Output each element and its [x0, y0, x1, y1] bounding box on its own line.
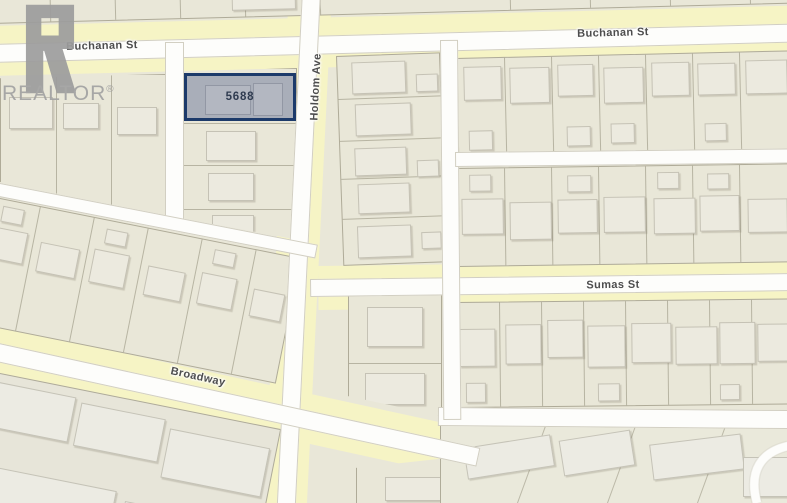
building-footprint [365, 373, 425, 405]
city-block [456, 298, 787, 408]
building-footprint [567, 175, 591, 192]
building-footprint [461, 198, 503, 235]
building-footprint [253, 83, 283, 116]
parcel-boundary-line [551, 57, 554, 157]
building-footprint [653, 198, 695, 235]
building-footprint [603, 196, 645, 233]
building-footprint [208, 173, 254, 201]
building-footprint [104, 229, 129, 248]
parcel-boundary-line [339, 95, 441, 100]
building-footprint [757, 323, 787, 361]
building-footprint [469, 175, 491, 192]
parcel-boundary-line [184, 165, 296, 166]
building-footprint [611, 123, 635, 144]
parcel-boundary-line [598, 167, 600, 264]
building-footprint [0, 206, 25, 226]
building-footprint [416, 73, 439, 92]
building-footprint [385, 477, 443, 501]
parcel-boundary-line [504, 58, 507, 158]
parcel-boundary-line [499, 303, 501, 407]
building-footprint [557, 64, 594, 97]
parcel-boundary-line [598, 56, 601, 156]
building-footprint [160, 428, 270, 497]
building-footprint [649, 434, 745, 481]
building-footprint [469, 130, 493, 151]
building-footprint [509, 67, 550, 104]
building-footprint [357, 183, 410, 215]
building-footprint [743, 457, 787, 497]
building-footprint [587, 325, 625, 367]
building-footprint [699, 195, 739, 232]
building-footprint [557, 199, 597, 234]
highlighted-parcel[interactable]: 5688 [184, 73, 296, 121]
street-label-buchanan-west: Buchanan St [60, 39, 144, 53]
building-footprint [651, 62, 690, 97]
building-footprint [603, 67, 644, 104]
parcel-boundary-line [349, 363, 441, 364]
parcel-boundary-line [692, 54, 695, 154]
building-footprint [697, 63, 736, 96]
building-footprint [35, 242, 80, 279]
parcel-boundary-line [111, 75, 112, 215]
building-footprint [421, 231, 442, 249]
building-footprint [232, 0, 296, 11]
building-footprint [463, 66, 502, 101]
building-footprint [598, 383, 620, 401]
building-footprint [559, 430, 636, 477]
building-footprint [357, 224, 412, 258]
building-footprint [417, 159, 440, 177]
lane-west [165, 42, 184, 224]
building-footprint [631, 323, 671, 363]
parcel-address-label: 5688 [226, 91, 255, 103]
building-footprint [117, 107, 157, 135]
building-footprint [0, 462, 117, 503]
city-block [440, 424, 787, 503]
map-canvas[interactable]: 5688 Buchanan St Buchanan St Holdom Ave … [0, 0, 787, 503]
building-footprint [719, 322, 755, 364]
building-footprint [367, 307, 423, 347]
building-footprint [747, 198, 787, 233]
parcel-boundary-line [184, 209, 296, 210]
parcel-boundary-line [49, 0, 51, 21]
parcel-boundary-line [509, 0, 511, 10]
building-footprint [143, 265, 186, 302]
building-footprint [354, 147, 407, 177]
building-footprint [675, 326, 717, 364]
building-footprint [509, 202, 552, 241]
building-footprint [547, 320, 583, 358]
street-label-buchanan-east: Buchanan St [571, 26, 655, 40]
building-footprint [249, 289, 286, 323]
building-footprint [9, 97, 53, 129]
parcel-boundary-line [343, 215, 445, 220]
parcel-boundary-line [669, 0, 671, 6]
building-footprint [73, 403, 166, 463]
building-footprint [466, 383, 486, 403]
parcel-boundary-line [179, 0, 181, 18]
lane-east [440, 40, 461, 420]
parcel-boundary-line [589, 0, 591, 8]
building-footprint [745, 59, 787, 94]
parcel-boundary-line [645, 55, 648, 155]
building-footprint [63, 103, 99, 129]
building-footprint [705, 123, 727, 141]
building-footprint [657, 172, 679, 189]
parcel-boundary-line [739, 53, 742, 153]
road-bottom [438, 407, 787, 429]
building-footprint [0, 226, 28, 264]
parcel-boundary-line [504, 168, 506, 265]
building-footprint [88, 249, 130, 289]
building-footprint [707, 173, 729, 189]
city-block [336, 52, 447, 266]
building-footprint [0, 381, 76, 443]
city-block [348, 292, 442, 416]
parcel-boundary-line [340, 137, 442, 142]
building-footprint [351, 61, 406, 95]
building-footprint [567, 126, 591, 147]
building-footprint [720, 384, 740, 400]
building-footprint [196, 272, 238, 310]
building-footprint [355, 102, 412, 136]
building-footprint [206, 131, 256, 161]
street-label-sumas: Sumas St [577, 279, 649, 292]
parcel-boundary-line [114, 0, 116, 20]
city-block [456, 50, 787, 160]
parcel-boundary-line [749, 0, 751, 4]
city-block [456, 163, 787, 267]
building-footprint [459, 329, 495, 367]
building-footprint [505, 324, 541, 364]
building-footprint [212, 249, 237, 268]
parcel-boundary-line [184, 123, 296, 124]
